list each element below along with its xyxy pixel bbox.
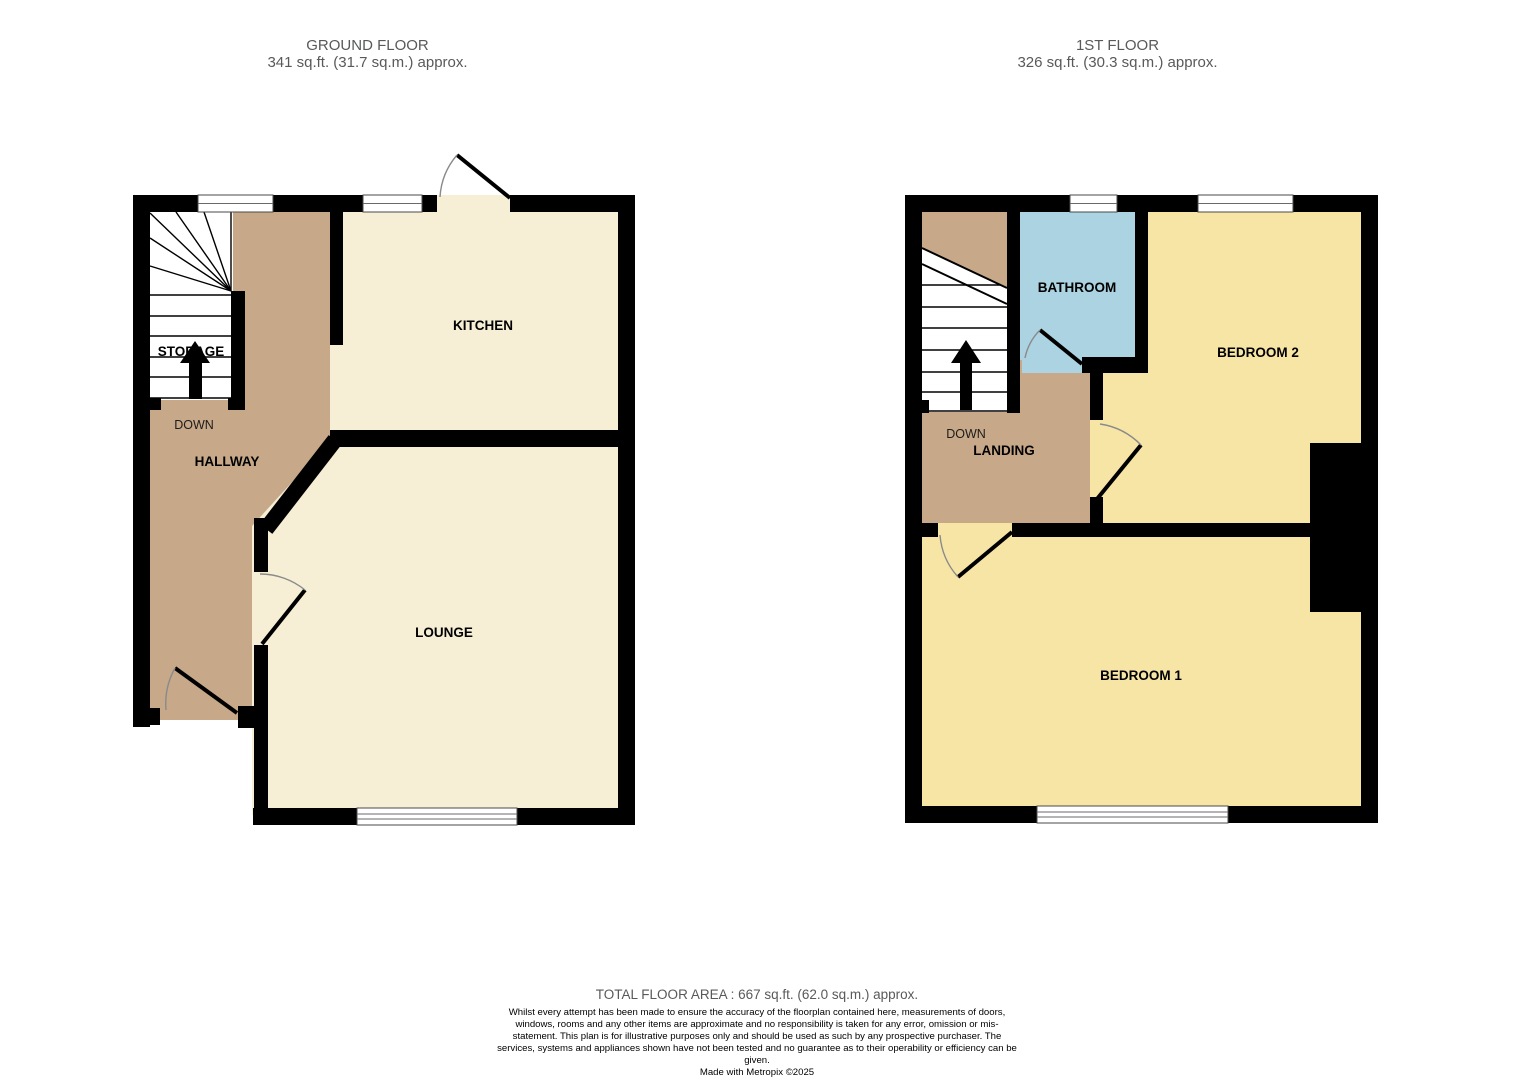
bedroom1-label: BEDROOM 1 [1100, 668, 1182, 683]
disclaimer-text: Whilst every attempt has been made to en… [497, 1007, 1017, 1067]
lounge-label: LOUNGE [415, 625, 473, 640]
storage-label: STORAGE [158, 344, 225, 359]
ground-floor-stairs [150, 212, 233, 400]
landing-label: LANDING [973, 443, 1035, 458]
metropix-credit: Made with Metropix ©2025 [497, 1067, 1017, 1079]
bedroom2-window [1198, 195, 1293, 212]
floorplan-drawing: STORAGE DOWN HALLWAY KITCHEN LOUNGE [0, 0, 1513, 1080]
bathroom-window [1070, 195, 1117, 212]
bedroom1-door-gap [938, 523, 1012, 537]
bathroom-door-gap [1022, 357, 1082, 373]
total-floor-area: TOTAL FLOOR AREA : 667 sq.ft. (62.0 sq.m… [497, 986, 1017, 1003]
lounge-window [357, 808, 517, 825]
floorplan-page: GROUND FLOOR 341 sq.ft. (31.7 sq.m.) app… [0, 0, 1513, 1080]
kitchen-label: KITCHEN [453, 318, 513, 333]
kitchen-back-door [440, 155, 510, 198]
first-down-label: DOWN [946, 427, 986, 441]
bathroom-label: BATHROOM [1038, 280, 1117, 295]
bedroom1-window [1037, 806, 1228, 823]
ground-down-label: DOWN [174, 418, 214, 432]
footer: TOTAL FLOOR AREA : 667 sq.ft. (62.0 sq.m… [497, 986, 1017, 1079]
ground-floor-plan: STORAGE DOWN HALLWAY KITCHEN LOUNGE [133, 155, 635, 825]
kitchen-window-right [363, 195, 422, 212]
chimney-breast-bedroom2 [1310, 443, 1361, 525]
bedroom2-door-gap [1090, 420, 1103, 497]
chimney-breast-bedroom1 [1310, 537, 1361, 612]
kitchen-window-left [198, 195, 273, 212]
first-floor-plan: BATHROOM BEDROOM 2 DOWN LANDING BEDROOM … [905, 195, 1378, 823]
first-floor-stairs [922, 212, 1007, 412]
hallway-label: HALLWAY [195, 454, 260, 469]
bedroom2-label: BEDROOM 2 [1217, 345, 1299, 360]
kitchen-door-gap [437, 195, 510, 212]
